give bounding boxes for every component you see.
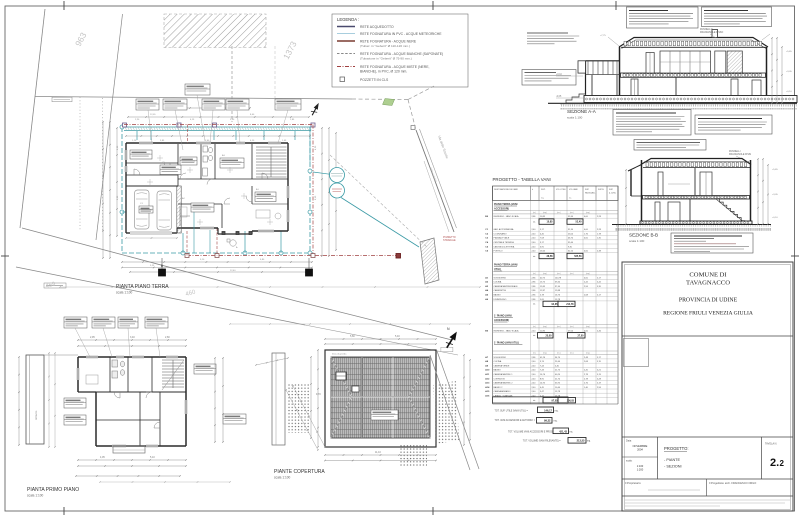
- svg-text:scala 1:100: scala 1:100: [274, 476, 291, 480]
- svg-text:+5,65: +5,65: [786, 51, 792, 53]
- svg-text:CABINA ARMADIO: CABINA ARMADIO: [494, 390, 512, 393]
- svg-text:tot.: tot.: [533, 220, 536, 223]
- svg-text:37,40: 37,40: [555, 286, 561, 288]
- svg-text:40,20: 40,20: [555, 374, 561, 376]
- svg-text:12,40: 12,40: [230, 270, 236, 272]
- svg-text:mq.: mq.: [541, 198, 544, 200]
- svg-text:23,40: 23,40: [555, 361, 561, 363]
- svg-text:Data:: Data:: [626, 440, 632, 443]
- svg-text:mc.: mc.: [569, 198, 572, 200]
- svg-text:5,80: 5,80: [350, 335, 355, 338]
- svg-text:PIANTA PIANO TERRA: PIANTA PIANO TERRA: [116, 284, 169, 290]
- svg-text:9,70: 9,70: [316, 393, 321, 396]
- svg-text:GAR. AUTORIMESSA: GAR. AUTORIMESSA: [494, 228, 515, 231]
- svg-text:10,85: 10,85: [540, 216, 546, 218]
- svg-text:CAMERA MATRIMONIALE: CAMERA MATRIMONIALE: [494, 285, 519, 288]
- svg-text:CORRIDOIO: CORRIDOIO: [494, 378, 506, 380]
- svg-text:- PIANTE: - PIANTE: [664, 458, 681, 462]
- svg-text:PROGETTO:: PROGETTO:: [664, 446, 689, 451]
- svg-text:+3,05: +3,05: [772, 194, 778, 196]
- svg-text:35,40: 35,40: [568, 242, 574, 244]
- svg-text:94,65: 94,65: [552, 303, 559, 306]
- svg-text:mc.: mc.: [570, 431, 574, 433]
- svg-text:NOVEMBRE: NOVEMBRE: [633, 444, 648, 448]
- svg-text:PIANTE COPERTURA: PIANTE COPERTURA: [274, 469, 325, 475]
- svg-text:+0,10: +0,10: [786, 91, 792, 93]
- svg-text:15,85: 15,85: [540, 286, 546, 288]
- svg-text:25,00: 25,00: [546, 334, 553, 337]
- svg-text:CENTRALE TERMICA: CENTRALE TERMICA: [494, 241, 515, 244]
- svg-text:32,10: 32,10: [568, 251, 574, 253]
- svg-text:46,70: 46,70: [568, 238, 574, 240]
- svg-text:94,70: 94,70: [555, 357, 561, 359]
- svg-text:38,58: 38,58: [547, 255, 554, 258]
- svg-text:TAVAGNACCO: TAVAGNACCO: [686, 280, 730, 287]
- svg-text:SEZIONE A-A: SEZIONE A-A: [567, 109, 597, 114]
- svg-text:VOL.VANI: VOL.VANI: [569, 188, 578, 191]
- svg-text:CAMERA MATRIM. 1: CAMERA MATRIM. 1: [494, 373, 514, 376]
- svg-text:4,05: 4,05: [100, 456, 105, 459]
- svg-text:PIAZZALE VIALE: PIAZZALE VIALE: [494, 237, 510, 240]
- svg-text:TOT. SUP. UTILE (VANI UTILI) =: TOT. SUP. UTILE (VANI UTILI) =: [495, 410, 529, 413]
- svg-text:terrazzo: terrazzo: [34, 410, 38, 420]
- svg-text:SEZIONE B-B: SEZIONE B-B: [629, 233, 658, 238]
- svg-text:TAVOLA N.: TAVOLA N.: [765, 443, 777, 446]
- svg-text:+3,05: +3,05: [786, 71, 792, 73]
- svg-text:13,65: 13,65: [540, 251, 546, 253]
- svg-text:CO.MURARIO: CO.MURARIO: [494, 232, 507, 235]
- svg-text:TOT. VOLUME (VANI RILEVANTE) =: TOT. VOLUME (VANI RILEVANTE) =: [523, 440, 562, 443]
- svg-text:BAGNO: BAGNO: [494, 369, 502, 372]
- svg-text:Il Proprietario:: Il Proprietario:: [625, 481, 641, 485]
- svg-text:CAMERETTA: CAMERETTA: [494, 289, 507, 292]
- svg-text:SOGGIORNO: SOGGIORNO: [494, 357, 507, 359]
- svg-text:SOGGIORNO: SOGGIORNO: [494, 277, 507, 279]
- svg-text:99,32: 99,32: [544, 419, 551, 423]
- svg-text:13,78: 13,78: [555, 299, 561, 301]
- svg-text:RETE FOGNATURA IN PVC - ACQUE: RETE FOGNATURA IN PVC - ACQUE METEORICHE: [360, 32, 442, 36]
- svg-text:11,10: 11,10: [375, 451, 381, 454]
- svg-text:BIANCHE), in PVC, Ø 120 mm.: BIANCHE), in PVC, Ø 120 mm.: [360, 69, 407, 73]
- svg-text:scala 1:100: scala 1:100: [116, 291, 133, 295]
- svg-text:3,40: 3,40: [130, 336, 135, 339]
- svg-text:25,00: 25,00: [568, 233, 574, 235]
- svg-text:21,75: 21,75: [555, 370, 561, 372]
- svg-text:21,70: 21,70: [555, 378, 561, 380]
- svg-text:+0,10: +0,10: [556, 74, 563, 76]
- svg-text:TOT. VANI ACCESSORI E AUTORIM.: TOT. VANI ACCESSORI E AUTORIM. =: [495, 419, 536, 422]
- svg-text:REGIONE FRIULI VENEZIA GIULIA: REGIONE FRIULI VENEZIA GIULIA: [663, 311, 753, 317]
- svg-text:1:100: 1:100: [637, 464, 644, 468]
- svg-text:10,40: 10,40: [555, 387, 561, 389]
- svg-text:PIANO TERRA (VANI: PIANO TERRA (VANI: [494, 203, 518, 206]
- svg-text:SUP.: SUP.: [541, 189, 546, 191]
- svg-text:PROVINCIA DI UDINE: PROVINCIA DI UDINE: [679, 298, 738, 304]
- svg-text:mq.: mq.: [555, 410, 559, 412]
- svg-text:(Tubaz. in "Geberit" Ø 110-120: (Tubaz. in "Geberit" Ø 110-120 mm.): [360, 44, 410, 48]
- svg-text:214,78: 214,78: [566, 303, 574, 306]
- svg-text:16,76: 16,76: [540, 374, 546, 376]
- svg-text:2004: 2004: [637, 448, 643, 452]
- svg-text:(Tubazione in "Geberit" Ø 75-9: (Tubazione in "Geberit" Ø 75-90 mm.): [360, 56, 412, 60]
- svg-text:RETE ACQUEDOTTO: RETE ACQUEDOTTO: [360, 25, 394, 29]
- svg-text:213,55: 213,55: [577, 439, 585, 443]
- svg-text:2.: 2.: [770, 457, 779, 469]
- svg-text:+5,65: +5,65: [772, 169, 778, 171]
- svg-text:5,10: 5,10: [150, 456, 155, 459]
- svg-text:linea di gronda: linea di gronda: [332, 353, 347, 356]
- svg-text:tot.: tot.: [533, 303, 536, 306]
- svg-text:SUP.: SUP.: [609, 189, 614, 191]
- svg-text:PORTICO: PORTICO: [494, 251, 504, 253]
- svg-text:31,30: 31,30: [568, 229, 574, 231]
- svg-text:19,88: 19,88: [555, 290, 561, 292]
- svg-text:10,85: 10,85: [540, 330, 546, 332]
- svg-text:PIANO TERRA (VANI: PIANO TERRA (VANI: [494, 264, 518, 267]
- svg-text:Il Progettista: arch. FRANCE: Il Progettista: arch. FRANCESCO ORGO: [709, 481, 756, 485]
- svg-text:140,78: 140,78: [555, 277, 562, 279]
- svg-text:STRADALE: STRADALE: [443, 239, 456, 242]
- svg-text:CUCINA: CUCINA: [494, 281, 502, 284]
- svg-text:FRANGISOLE FISSI: FRANGISOLE FISSI: [729, 153, 751, 156]
- svg-text:tot.: tot.: [533, 399, 536, 402]
- svg-text:1° PIANO (VANI: 1° PIANO (VANI: [494, 315, 512, 318]
- svg-text:ACCESSORI): ACCESSORI): [494, 319, 509, 322]
- svg-text:2: 2: [780, 459, 785, 468]
- svg-text:421,43: 421,43: [559, 429, 567, 433]
- svg-text:INGRESSO - VANO SCALA: INGRESSO - VANO SCALA: [494, 329, 520, 332]
- svg-text:12,87: 12,87: [540, 290, 546, 292]
- svg-text:tot.: tot.: [533, 255, 536, 258]
- svg-text:CAMERA MATRIM. 2: CAMERA MATRIM. 2: [494, 382, 514, 385]
- svg-text:scala 1:100: scala 1:100: [629, 239, 645, 243]
- svg-text:27,00: 27,00: [568, 330, 574, 332]
- svg-text:52,40: 52,40: [576, 221, 583, 224]
- svg-text:SUP.: SUP.: [585, 189, 590, 191]
- svg-text:146,17: 146,17: [544, 408, 552, 412]
- svg-text:PROGETTO - TABELLA VANI: PROGETTO - TABELLA VANI: [493, 177, 551, 182]
- svg-text:DESTINAZIONE DEI VANI: DESTINAZIONE DEI VANI: [494, 188, 518, 191]
- svg-text:scala 1:100: scala 1:100: [567, 116, 583, 120]
- svg-text:UTILI): UTILI): [494, 268, 501, 271]
- svg-text:97,05: 97,05: [552, 399, 559, 402]
- svg-text:scala 1:100: scala 1:100: [27, 494, 44, 498]
- svg-text:DISIMPEGNO: DISIMPEGNO: [494, 299, 507, 301]
- svg-text:VOL.UTILE: VOL.UTILE: [556, 189, 566, 191]
- svg-text:2,95: 2,95: [90, 336, 95, 339]
- svg-text:tot.: tot.: [533, 334, 536, 337]
- svg-text:INGRESSO - VANO SCALA: INGRESSO - VANO SCALA: [494, 215, 520, 218]
- svg-text:14,95: 14,95: [540, 383, 546, 385]
- svg-text:LEGENDA :: LEGENDA :: [337, 17, 359, 22]
- svg-text:mq.: mq.: [587, 441, 591, 443]
- svg-text:+7,75: +7,75: [600, 35, 606, 37]
- svg-text:PIANTA PRIMO PIANO: PIANTA PRIMO PIANO: [27, 487, 79, 493]
- svg-text:+0,10: +0,10: [772, 217, 778, 219]
- svg-text:ACCESSORI): ACCESSORI): [494, 208, 509, 211]
- svg-text:39,40: 39,40: [555, 282, 561, 284]
- svg-text:40,75: 40,75: [540, 277, 546, 279]
- svg-text:10,85: 10,85: [547, 221, 554, 224]
- svg-text:41,26: 41,26: [540, 357, 546, 359]
- svg-text:13,78: 13,78: [555, 391, 561, 393]
- svg-text:BAGNO 2: BAGNO 2: [494, 386, 504, 389]
- svg-text:CAMERA VERDE: CAMERA VERDE: [494, 364, 511, 367]
- svg-text:mq.: mq.: [554, 421, 558, 423]
- svg-text:35,95: 35,95: [555, 383, 561, 385]
- svg-text:POZZETTI IN CLS: POZZETTI IN CLS: [360, 78, 389, 82]
- svg-text:1:200: 1:200: [637, 468, 644, 472]
- svg-text:535,53: 535,53: [574, 255, 582, 258]
- svg-text:5,40: 5,40: [395, 335, 400, 338]
- svg-text:CUCINA: CUCINA: [494, 360, 502, 363]
- svg-text:13,75: 13,75: [540, 282, 546, 284]
- svg-text:RAGGUAGL.: RAGGUAGL.: [585, 192, 596, 195]
- svg-text:2,80: 2,80: [165, 336, 170, 339]
- svg-text:- SEZIONI: - SEZIONI: [664, 465, 682, 469]
- svg-text:SUP.N.: SUP.N.: [598, 189, 605, 191]
- svg-text:CANT.BICICLETTERIA: CANT.BICICLETTERIA: [494, 245, 515, 248]
- svg-text:h: h: [532, 189, 533, 191]
- svg-text:27,00: 27,00: [578, 334, 585, 337]
- svg-text:16,73: 16,73: [555, 295, 561, 297]
- svg-text:FRANGISOLE FISSO: FRANGISOLE FISSO: [700, 31, 723, 34]
- svg-text:(L.10/91): (L.10/91): [609, 193, 616, 195]
- svg-text:COMUNE DI: COMUNE DI: [689, 272, 726, 279]
- svg-text:scala:: scala:: [626, 460, 633, 463]
- svg-text:-0,05: -0,05: [556, 96, 562, 98]
- svg-text:52,40: 52,40: [568, 216, 574, 218]
- svg-text:1° PIANO (VANI UTILI): 1° PIANO (VANI UTILI): [494, 342, 519, 345]
- svg-text:12,05: 12,05: [150, 114, 156, 116]
- svg-text:BAGNO: BAGNO: [494, 294, 502, 297]
